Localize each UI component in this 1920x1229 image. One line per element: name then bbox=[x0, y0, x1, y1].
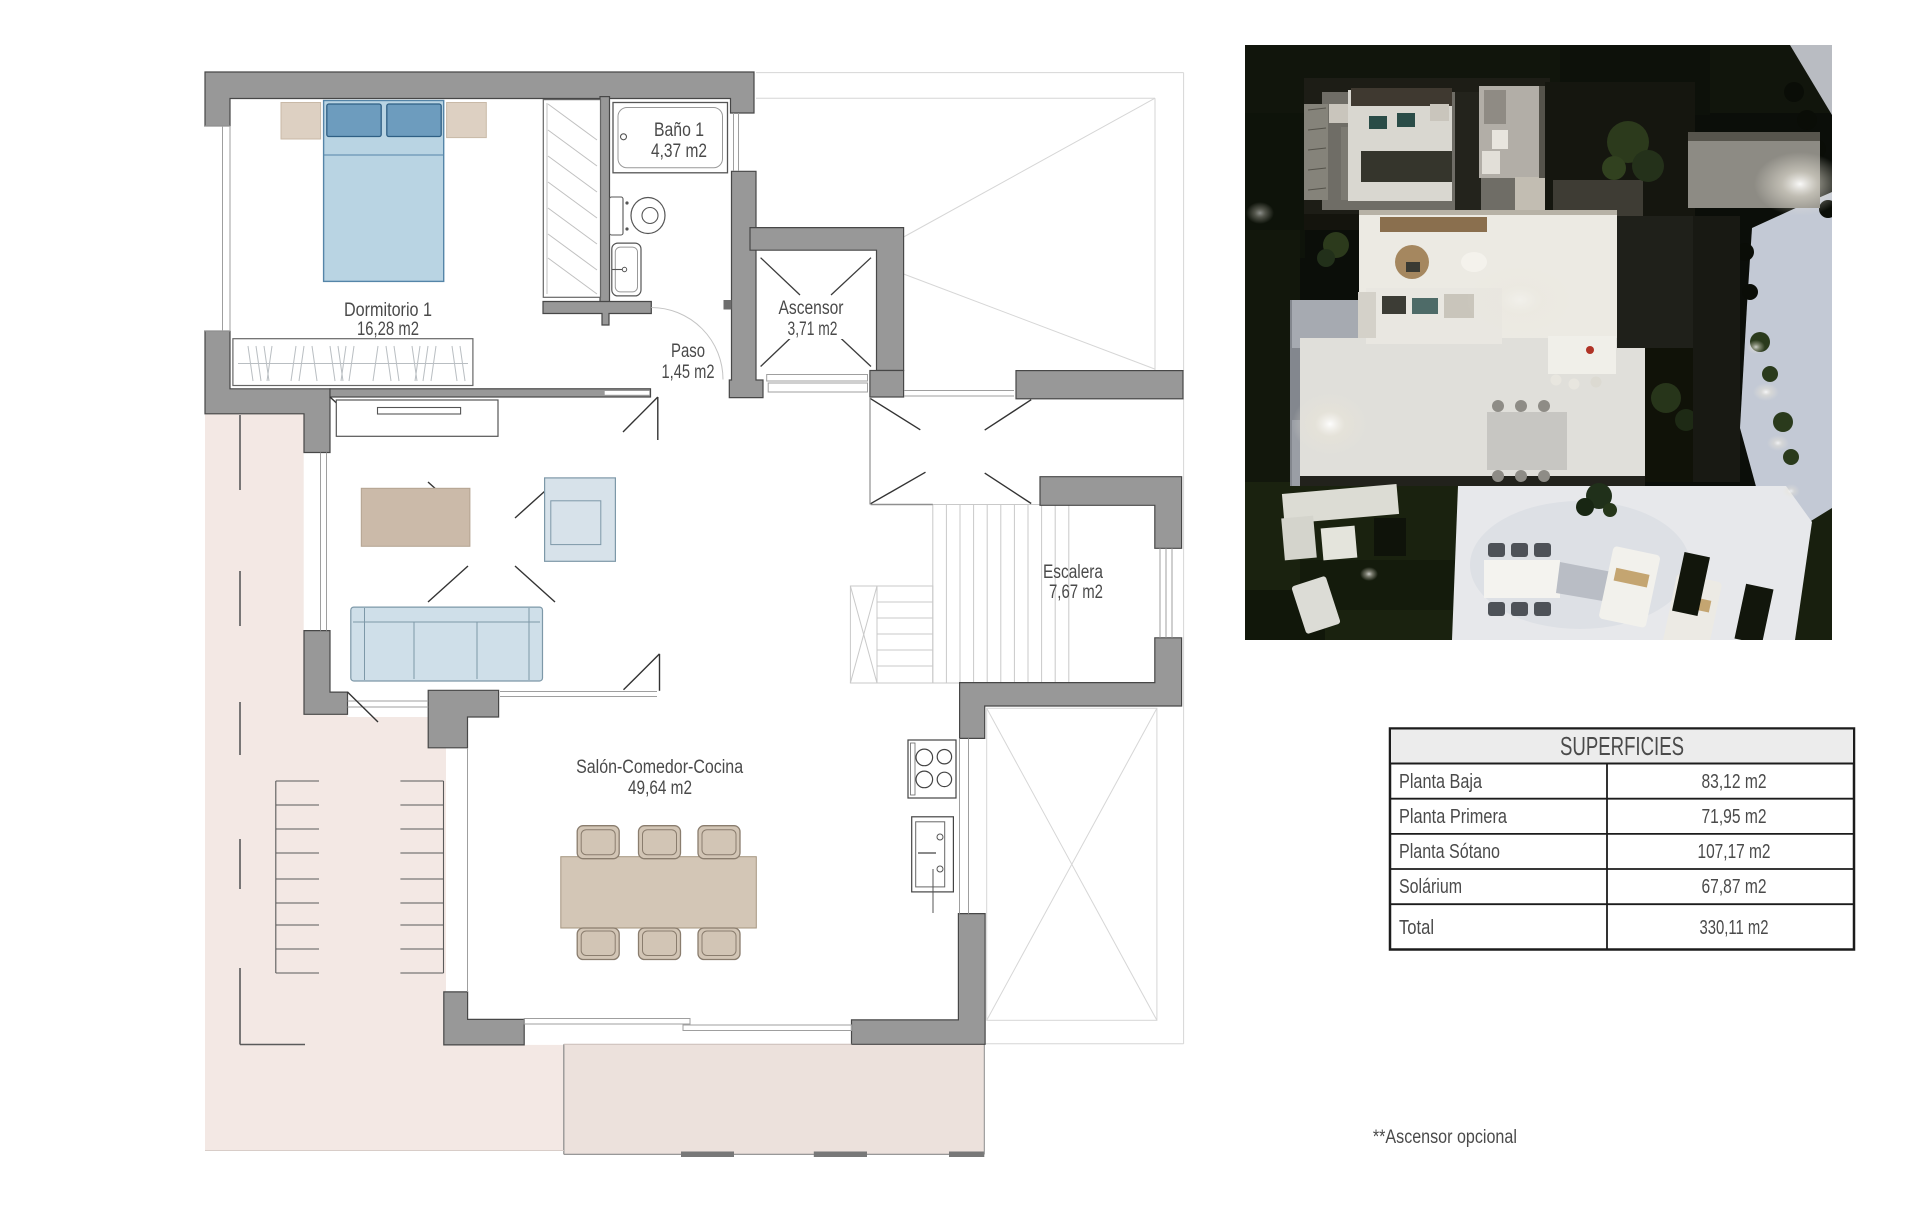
svg-text:Salón-Comedor-Cocina: Salón-Comedor-Cocina bbox=[576, 757, 743, 778]
svg-text:Solárium: Solárium bbox=[1399, 876, 1462, 898]
svg-text:83,12 m2: 83,12 m2 bbox=[1702, 771, 1767, 793]
svg-text:Planta Sótano: Planta Sótano bbox=[1399, 841, 1500, 863]
svg-text:Paso: Paso bbox=[671, 341, 705, 362]
svg-text:330,11 m2: 330,11 m2 bbox=[1700, 917, 1769, 939]
svg-text:Escalera: Escalera bbox=[1043, 562, 1103, 583]
svg-text:4,37 m2: 4,37 m2 bbox=[651, 141, 707, 162]
svg-text:Baño 1: Baño 1 bbox=[654, 120, 704, 141]
svg-text:107,17 m2: 107,17 m2 bbox=[1698, 841, 1771, 863]
svg-text:Planta Baja: Planta Baja bbox=[1399, 771, 1483, 793]
svg-text:1,45 m2: 1,45 m2 bbox=[662, 362, 715, 383]
svg-text:SUPERFICIES: SUPERFICIES bbox=[1560, 731, 1684, 761]
svg-text:Planta Primera: Planta Primera bbox=[1399, 806, 1508, 828]
svg-text:71,95 m2: 71,95 m2 bbox=[1702, 806, 1767, 828]
svg-text:7,67 m2: 7,67 m2 bbox=[1049, 582, 1103, 603]
svg-text:16,28 m2: 16,28 m2 bbox=[357, 319, 419, 340]
svg-text:Ascensor: Ascensor bbox=[779, 298, 845, 319]
svg-text:Dormitorio 1: Dormitorio 1 bbox=[344, 300, 432, 321]
svg-text:**Ascensor opcional: **Ascensor opcional bbox=[1373, 1127, 1517, 1148]
svg-text:67,87 m2: 67,87 m2 bbox=[1702, 876, 1767, 898]
svg-text:49,64 m2: 49,64 m2 bbox=[628, 778, 692, 799]
svg-text:Total: Total bbox=[1399, 917, 1434, 939]
svg-text:3,71 m2: 3,71 m2 bbox=[788, 319, 838, 340]
